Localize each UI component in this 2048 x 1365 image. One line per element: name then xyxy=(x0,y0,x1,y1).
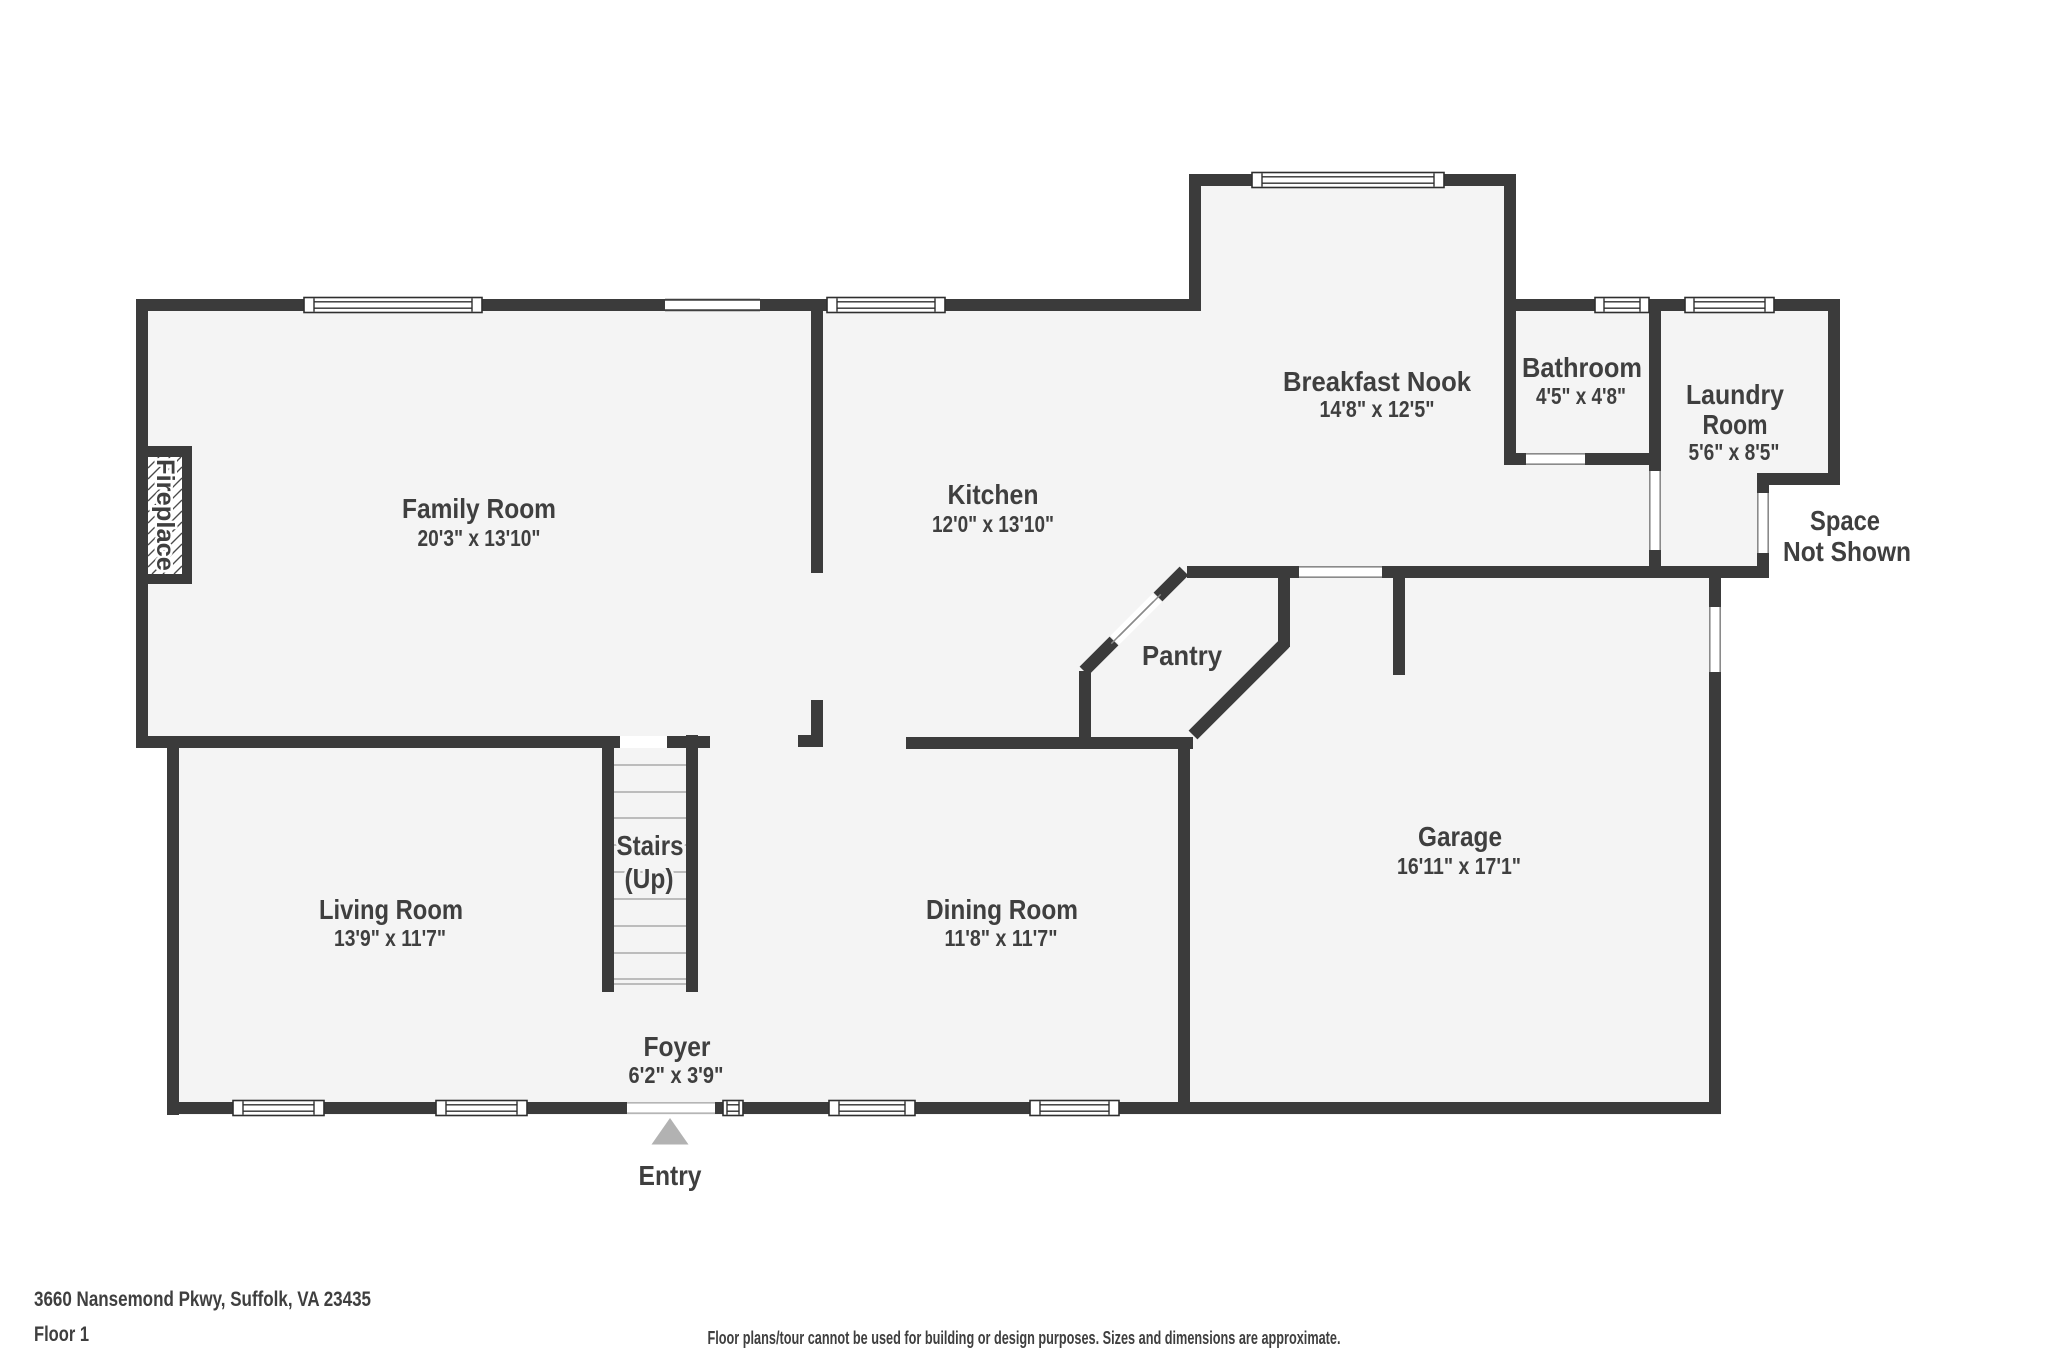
svg-text:Kitchen: Kitchen xyxy=(948,479,1039,510)
svg-text:5'6" x 8'5": 5'6" x 8'5" xyxy=(1689,439,1780,465)
svg-text:Stairs: Stairs xyxy=(617,830,684,861)
svg-text:Room: Room xyxy=(1703,409,1768,440)
svg-text:Bathroom: Bathroom xyxy=(1522,352,1642,383)
svg-text:3660 Nansemond Pkwy, Suffolk,: 3660 Nansemond Pkwy, Suffolk, VA 23435 xyxy=(34,1288,371,1311)
svg-text:Not Shown: Not Shown xyxy=(1783,536,1911,567)
svg-text:4'5" x 4'8": 4'5" x 4'8" xyxy=(1536,383,1626,409)
svg-text:Fireplace: Fireplace xyxy=(151,459,179,571)
svg-text:Entry: Entry xyxy=(639,1160,702,1191)
svg-text:20'3" x 13'10": 20'3" x 13'10" xyxy=(418,525,541,551)
svg-text:Floor plans/tour cannot be use: Floor plans/tour cannot be used for buil… xyxy=(708,1328,1341,1348)
svg-text:13'9" x 11'7": 13'9" x 11'7" xyxy=(334,925,446,951)
svg-text:(Up): (Up) xyxy=(625,863,674,894)
svg-text:16'11" x 17'1": 16'11" x 17'1" xyxy=(1397,853,1521,879)
svg-text:14'8" x 12'5": 14'8" x 12'5" xyxy=(1320,396,1435,422)
svg-text:Family Room: Family Room xyxy=(402,493,556,524)
svg-text:Laundry: Laundry xyxy=(1686,379,1784,410)
svg-text:Living Room: Living Room xyxy=(319,894,463,925)
svg-text:Space: Space xyxy=(1810,505,1880,536)
svg-text:Garage: Garage xyxy=(1418,821,1502,852)
svg-text:Breakfast Nook: Breakfast Nook xyxy=(1283,366,1471,397)
svg-text:12'0" x 13'10": 12'0" x 13'10" xyxy=(932,511,1054,537)
svg-text:6'2" x 3'9": 6'2" x 3'9" xyxy=(629,1062,724,1088)
svg-text:Pantry: Pantry xyxy=(1142,640,1222,671)
svg-text:Floor 1: Floor 1 xyxy=(34,1323,89,1346)
svg-text:11'8" x 11'7": 11'8" x 11'7" xyxy=(945,925,1058,951)
svg-text:Dining Room: Dining Room xyxy=(926,894,1078,925)
svg-text:Foyer: Foyer xyxy=(644,1031,711,1062)
